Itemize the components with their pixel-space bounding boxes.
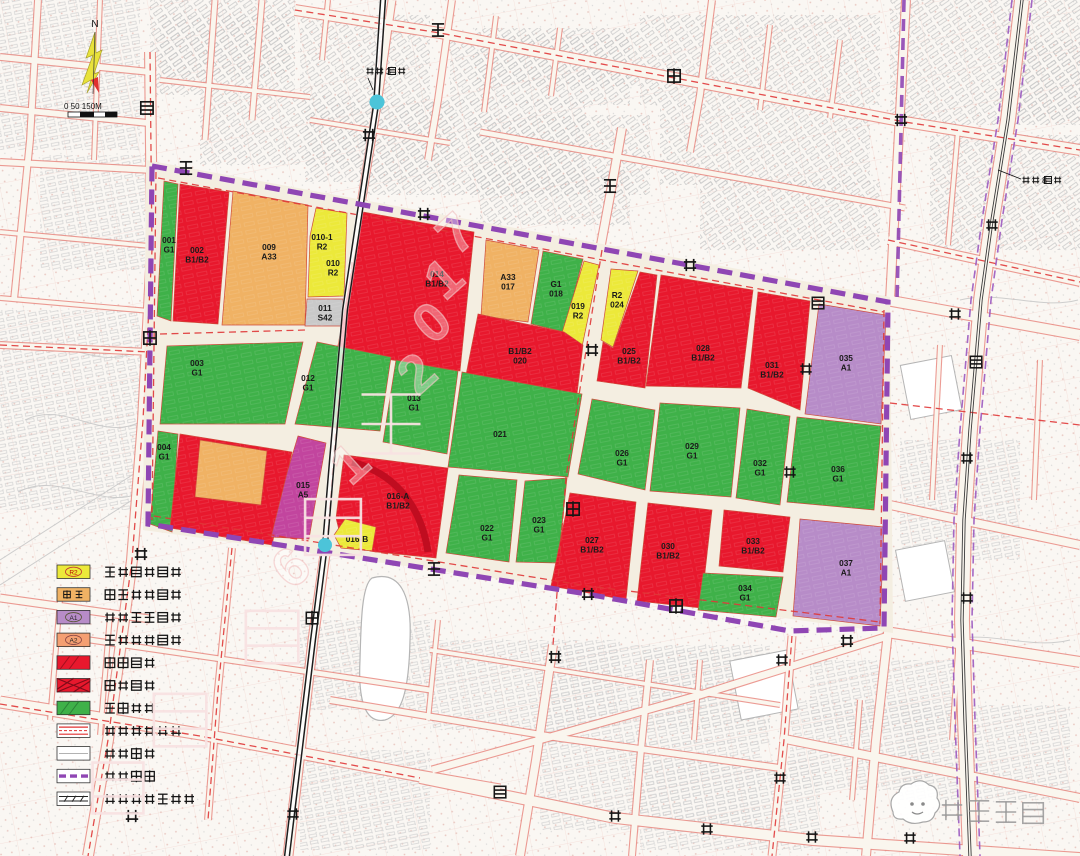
svg-text:G1: G1	[550, 279, 561, 289]
svg-text:R2: R2	[612, 290, 623, 300]
svg-text:029: 029	[685, 441, 699, 451]
svg-text:028: 028	[696, 343, 710, 353]
svg-text:G1: G1	[158, 452, 169, 462]
svg-text:B1/B2: B1/B2	[691, 353, 715, 363]
svg-text:A33: A33	[500, 272, 516, 282]
svg-text:A1: A1	[70, 615, 78, 622]
svg-text:0 50 150M: 0 50 150M	[64, 102, 102, 111]
svg-text:B1/B2: B1/B2	[508, 346, 532, 356]
svg-text:017: 017	[501, 282, 515, 292]
svg-text:002: 002	[190, 245, 204, 255]
svg-text:025: 025	[622, 346, 636, 356]
svg-text:G1: G1	[754, 468, 765, 478]
svg-text:G1: G1	[739, 593, 750, 603]
svg-text:015: 015	[296, 480, 310, 490]
svg-text:032: 032	[753, 458, 767, 468]
svg-text:020: 020	[513, 356, 527, 366]
svg-text:012: 012	[301, 373, 315, 383]
svg-text:022: 022	[480, 523, 494, 533]
svg-text:G1: G1	[163, 245, 174, 255]
svg-text:G1: G1	[533, 525, 544, 535]
svg-text:009: 009	[262, 242, 276, 252]
svg-text:A33: A33	[261, 252, 277, 262]
svg-text:026: 026	[615, 448, 629, 458]
svg-text:B1/B2: B1/B2	[741, 546, 765, 556]
svg-text:A1: A1	[841, 363, 852, 373]
svg-text:036: 036	[831, 464, 845, 474]
svg-text:033: 033	[746, 536, 760, 546]
svg-text:035: 035	[839, 353, 853, 363]
svg-text:A1: A1	[841, 568, 852, 578]
svg-text:B1/B2: B1/B2	[185, 255, 209, 265]
svg-text:019: 019	[571, 301, 585, 311]
svg-text:031: 031	[765, 360, 779, 370]
svg-text:016-A: 016-A	[387, 491, 410, 501]
svg-text:R2: R2	[317, 242, 328, 252]
svg-text:023: 023	[532, 515, 546, 525]
svg-text:B1/B2: B1/B2	[580, 545, 604, 555]
svg-text:G1: G1	[302, 383, 313, 393]
svg-text:G1: G1	[191, 368, 202, 378]
svg-text:011: 011	[318, 303, 332, 313]
svg-text:021: 021	[493, 429, 507, 439]
svg-text:B1/B2: B1/B2	[617, 356, 641, 366]
svg-text:G1: G1	[686, 451, 697, 461]
svg-text:010: 010	[326, 258, 340, 268]
svg-text:A2: A2	[70, 638, 78, 645]
svg-text:024: 024	[610, 300, 624, 310]
svg-text:037: 037	[839, 558, 853, 568]
svg-text:001: 001	[162, 235, 176, 245]
svg-text:B1/B2: B1/B2	[760, 370, 784, 380]
svg-text:003: 003	[190, 358, 204, 368]
svg-text:027: 027	[585, 535, 599, 545]
svg-text:S42: S42	[318, 313, 333, 323]
svg-text:018: 018	[549, 289, 563, 299]
svg-text:G1: G1	[481, 533, 492, 543]
svg-text:B1/B2: B1/B2	[386, 501, 410, 511]
svg-text:004: 004	[157, 442, 171, 452]
svg-text:R2: R2	[328, 268, 339, 278]
svg-text:G1: G1	[616, 458, 627, 468]
svg-text:G1: G1	[408, 403, 419, 413]
svg-text:034: 034	[738, 583, 752, 593]
svg-text:R2: R2	[69, 570, 78, 577]
svg-text:030: 030	[661, 541, 675, 551]
svg-text:B1/B2: B1/B2	[656, 551, 680, 561]
svg-text:R2: R2	[573, 311, 584, 321]
svg-text:G1: G1	[832, 474, 843, 484]
svg-text:N: N	[91, 19, 98, 30]
svg-text:010-1: 010-1	[311, 232, 333, 242]
